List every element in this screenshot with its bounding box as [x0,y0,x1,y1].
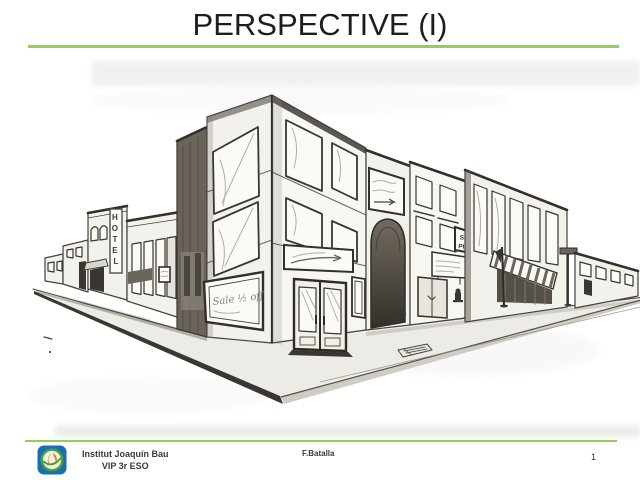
small-shop-building [45,240,88,292]
small-wall-sign [159,267,170,282]
institution-block: Institut Joaquín Bau VIP 3r ESO [82,448,169,472]
school-logo [37,445,67,475]
entrance-doors [288,279,353,357]
footer-divider [25,440,617,442]
footer-course: VIP 3r ESO [82,460,169,472]
utility-cabinet [418,277,447,318]
tall-dark-building [177,127,207,337]
awning-building [465,170,567,322]
hotel-sign: H O T E L [110,209,122,273]
shadow-object [392,309,406,319]
footer-author: F.Batalla [302,449,334,458]
storefront-sign [284,245,353,272]
storefront-building [127,212,180,318]
right-street-buildings: SEN PITS [366,150,638,330]
footer-institution: Institut Joaquín Bau [82,448,169,460]
sale-window: Sale ½ off [204,272,266,330]
street-mark [44,337,52,339]
hotel-building: H O T E L [84,206,127,300]
perspective-sketch: H O T E L [0,0,640,480]
arch-passage-building [366,150,410,330]
street-dot [49,351,51,353]
far-building-door [584,279,592,296]
corner-building: Sale ½ off [204,95,366,357]
page-number: 1 [591,452,596,462]
footer-identity: Institut Joaquín Bau VIP 3r ESO [37,445,169,475]
hotel-entrance [90,267,104,292]
side-panel-window [352,277,365,318]
